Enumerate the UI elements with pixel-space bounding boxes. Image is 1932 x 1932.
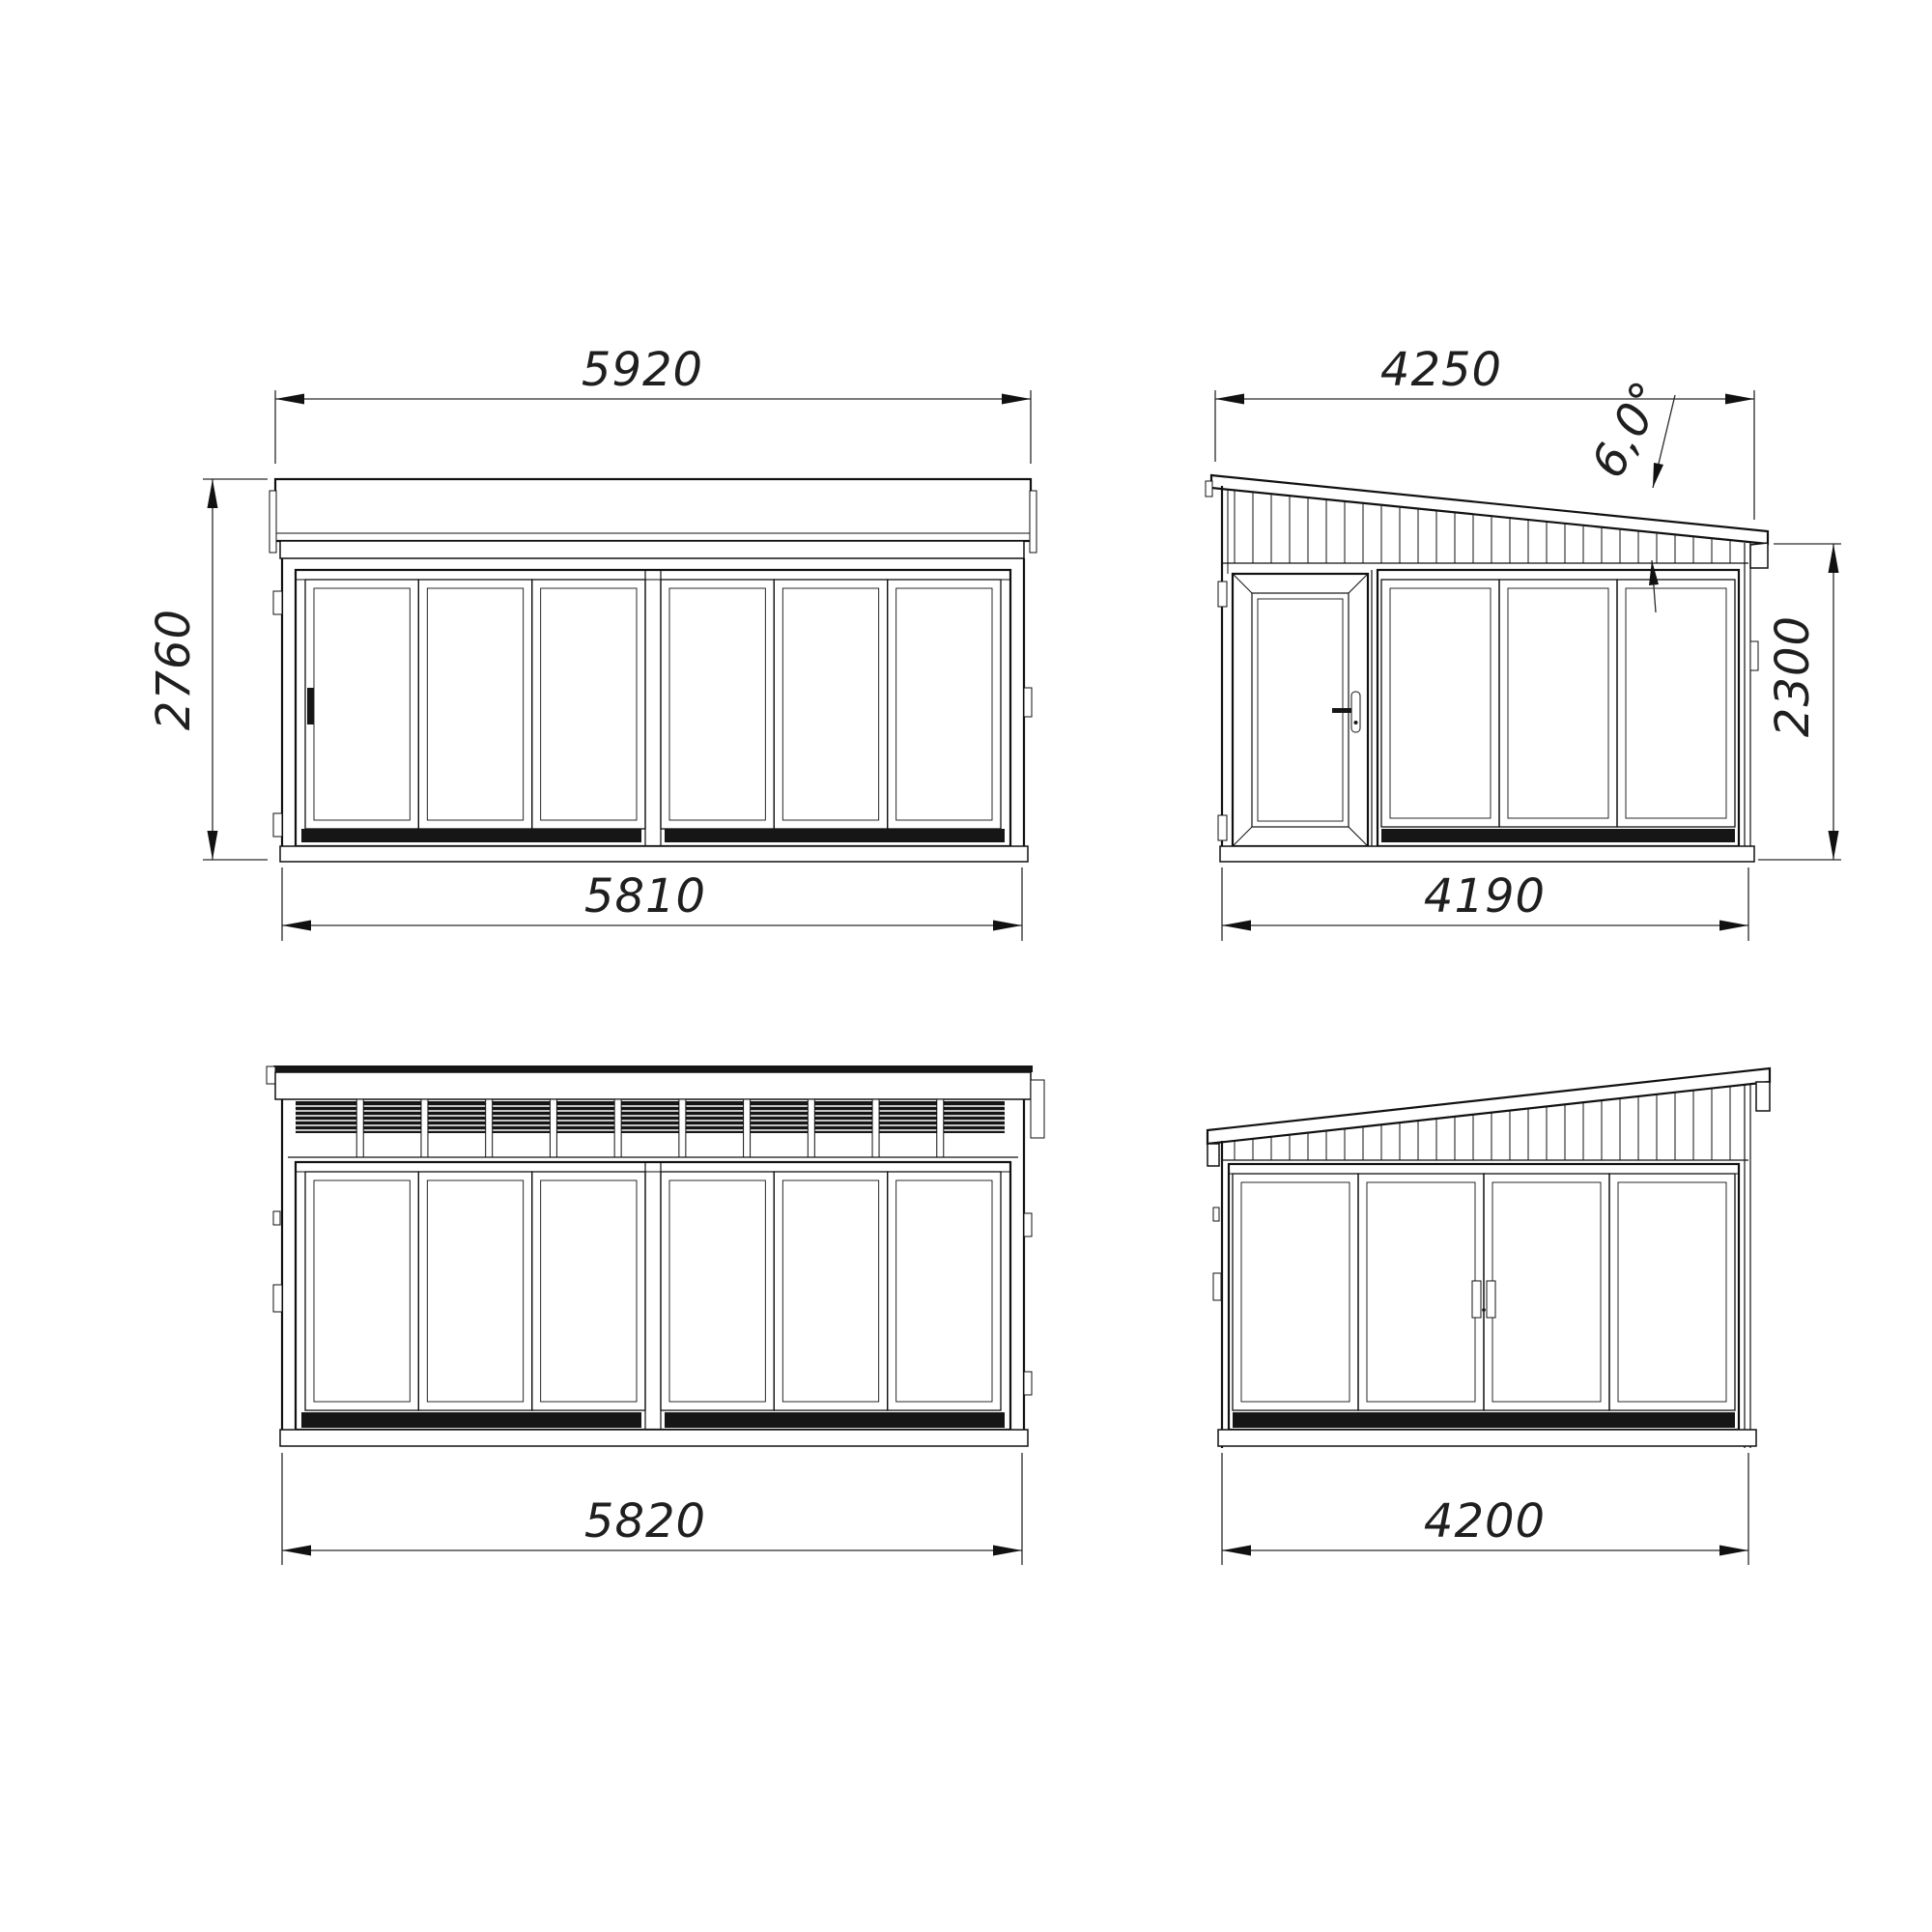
rear-sliding-glass-group-left bbox=[305, 1172, 645, 1410]
dim-side-door-bottom-width: 4190 bbox=[1222, 867, 1748, 941]
glass-panel bbox=[1617, 580, 1735, 827]
front-right-end-cap bbox=[1030, 491, 1037, 553]
side-door-base-plate bbox=[1220, 846, 1754, 862]
rear-louver-band bbox=[296, 1099, 1005, 1157]
arrow-down bbox=[1829, 831, 1839, 860]
glass-pane bbox=[314, 1180, 410, 1402]
glass-pane bbox=[1508, 588, 1608, 818]
entrance-door bbox=[1218, 574, 1368, 846]
glass-pane bbox=[669, 1180, 765, 1402]
side-door-sill-track bbox=[1381, 829, 1735, 842]
rear-base-plate bbox=[280, 1430, 1028, 1446]
door-miter-line bbox=[1233, 827, 1252, 846]
arrow-right bbox=[1002, 394, 1031, 405]
side-elevation-sliding-view: 4200 bbox=[1207, 1068, 1770, 1565]
dim-value-side-door-bottom-width: 4190 bbox=[1424, 869, 1546, 923]
glass-pane bbox=[1241, 1182, 1350, 1402]
technical-drawing-page: 5920 2760 5810 bbox=[0, 0, 1932, 1932]
glass-pane bbox=[1626, 588, 1726, 818]
glass-pane bbox=[1492, 1182, 1601, 1402]
dim-front-top-width: 5920 bbox=[275, 343, 1031, 464]
arrow-right bbox=[1719, 1546, 1748, 1556]
rear-sill-track-right bbox=[665, 1412, 1005, 1428]
front-hinge-upper bbox=[273, 591, 282, 614]
louver-post bbox=[808, 1099, 814, 1157]
door-miter-line bbox=[1349, 574, 1368, 593]
front-left-end-cap bbox=[270, 491, 276, 553]
front-eave-strip bbox=[280, 541, 1024, 558]
side-sliding-roof-slab bbox=[1207, 1068, 1770, 1144]
glass-panel bbox=[774, 580, 887, 829]
glass-panel bbox=[1484, 1174, 1609, 1410]
dim-front-left-height: 2760 bbox=[147, 479, 268, 860]
front-fascia bbox=[275, 479, 1031, 541]
glass-pane bbox=[669, 588, 765, 820]
arrow-right bbox=[993, 921, 1022, 931]
louver-post bbox=[614, 1099, 621, 1157]
louver-post bbox=[550, 1099, 556, 1157]
louver-post bbox=[486, 1099, 493, 1157]
front-door-handle bbox=[307, 688, 314, 724]
glass-panel bbox=[1233, 1174, 1358, 1410]
dim-value-side-door-top-width: 4250 bbox=[1380, 343, 1502, 397]
glass-panel bbox=[1381, 580, 1499, 827]
dim-front-bottom-width: 5810 bbox=[282, 867, 1022, 941]
front-glazing-unit bbox=[296, 570, 1010, 846]
front-sill-track-left bbox=[301, 829, 641, 842]
side-door-glass-group bbox=[1381, 580, 1735, 827]
rear-glazing-unit bbox=[296, 1162, 1010, 1430]
side-sliding-sill-track bbox=[1233, 1412, 1735, 1428]
dim-value-rear-bottom-width: 5820 bbox=[584, 1494, 706, 1548]
side-door-roof-left-notch bbox=[1206, 481, 1212, 497]
door-hinge-lower bbox=[1218, 815, 1227, 840]
glass-pane bbox=[541, 1180, 637, 1402]
side-sliding-hinge-small bbox=[1213, 1207, 1219, 1221]
door-lever-handle bbox=[1332, 708, 1353, 713]
rear-sliding-glass-group-right bbox=[661, 1172, 1001, 1410]
side-sliding-handle-left bbox=[1472, 1281, 1481, 1318]
side-sliding-lock-dot bbox=[1482, 1308, 1486, 1312]
side-sliding-glass-group bbox=[1233, 1174, 1735, 1410]
glass-panel bbox=[532, 1172, 645, 1410]
door-miter-line bbox=[1233, 574, 1252, 593]
dim-roof-angle: 6,0° bbox=[1581, 372, 1676, 612]
side-sliding-roof-left-fascia bbox=[1207, 1144, 1219, 1166]
side-door-latch-keep bbox=[1750, 641, 1758, 670]
arrow-right bbox=[993, 1546, 1022, 1556]
dim-rear-bottom-width: 5820 bbox=[282, 1453, 1022, 1565]
front-hinge-lower bbox=[273, 813, 282, 837]
rear-fascia bbox=[275, 1072, 1031, 1099]
glass-panel bbox=[418, 580, 531, 829]
glass-pane bbox=[1618, 1182, 1726, 1402]
rear-sill-track-left bbox=[301, 1412, 641, 1428]
glass-pane bbox=[896, 1180, 992, 1402]
glass-panel bbox=[888, 1172, 1001, 1410]
dim-side-door-right-height: 2300 bbox=[1758, 544, 1841, 860]
louver-post bbox=[937, 1099, 944, 1157]
arrow-down bbox=[208, 831, 218, 860]
glass-pane bbox=[1367, 1182, 1475, 1402]
dim-side-sliding-bottom-width: 4200 bbox=[1222, 1453, 1748, 1565]
dim-value-side-door-right-height: 2300 bbox=[1766, 615, 1820, 737]
front-elevation-view: 5920 2760 5810 bbox=[147, 343, 1037, 941]
louver-post bbox=[872, 1099, 879, 1157]
glass-panel bbox=[418, 1172, 531, 1410]
front-base-plate bbox=[280, 846, 1028, 862]
front-latch-keep bbox=[1024, 688, 1032, 717]
rear-right-keep-upper bbox=[1024, 1213, 1032, 1236]
door-miter-line bbox=[1349, 827, 1368, 846]
dim-value-front-left-height: 2760 bbox=[147, 609, 201, 730]
glass-pane bbox=[782, 1180, 878, 1402]
arrow-up bbox=[1829, 544, 1839, 573]
rear-roof-edge bbox=[273, 1065, 1033, 1072]
louver-post bbox=[421, 1099, 428, 1157]
front-sliding-glass-group-left bbox=[305, 580, 645, 829]
glass-pane bbox=[314, 588, 410, 820]
louver-post bbox=[356, 1099, 363, 1157]
arrow-up bbox=[208, 479, 218, 508]
door-escutcheon bbox=[1351, 692, 1360, 732]
side-sliding-left-latch bbox=[1213, 1273, 1221, 1300]
glass-panel bbox=[1358, 1174, 1484, 1410]
glass-pane bbox=[427, 588, 523, 820]
glass-panel bbox=[661, 1172, 774, 1410]
side-door-roof-slab bbox=[1211, 475, 1768, 544]
glass-pane bbox=[782, 588, 878, 820]
dim-value-front-top-width: 5920 bbox=[582, 343, 703, 397]
rear-right-keep-lower bbox=[1024, 1372, 1032, 1395]
glass-panel bbox=[1499, 580, 1617, 827]
elevation-drawing-canvas: 5920 2760 5810 bbox=[0, 0, 1932, 1932]
louver-post bbox=[679, 1099, 686, 1157]
arrow-right bbox=[1725, 394, 1754, 405]
arrow-left bbox=[282, 1546, 311, 1556]
side-sliding-handle-right bbox=[1487, 1281, 1495, 1318]
side-door-roof-right-fascia bbox=[1750, 543, 1768, 568]
door-hinge-upper bbox=[1218, 582, 1227, 607]
louver-post bbox=[744, 1099, 751, 1157]
side-sliding-base-plate bbox=[1218, 1430, 1756, 1446]
glass-panel bbox=[1609, 1174, 1735, 1410]
arrow-to-roof bbox=[1653, 463, 1663, 488]
front-sliding-glass-group-right bbox=[661, 580, 1001, 829]
arrow-right bbox=[1719, 921, 1748, 931]
door-keyhole bbox=[1354, 721, 1358, 724]
rear-left-latch bbox=[273, 1285, 282, 1312]
glass-panel bbox=[888, 580, 1001, 829]
glass-pane bbox=[427, 1180, 523, 1402]
glass-panel bbox=[774, 1172, 887, 1410]
glass-panel bbox=[532, 580, 645, 829]
glass-pane bbox=[896, 588, 992, 820]
arrow-left bbox=[282, 921, 311, 931]
dim-value-side-sliding-bottom-width: 4200 bbox=[1424, 1494, 1546, 1548]
glass-panel bbox=[305, 1172, 418, 1410]
arrow-to-head bbox=[1649, 560, 1659, 585]
arrow-left bbox=[1222, 1546, 1251, 1556]
door-glass-pane bbox=[1258, 599, 1343, 821]
arrow-left bbox=[1222, 921, 1251, 931]
glass-pane bbox=[541, 588, 637, 820]
glass-panel bbox=[661, 580, 774, 829]
rear-hinge-small bbox=[273, 1211, 280, 1225]
dim-value-front-bottom-width: 5810 bbox=[584, 869, 706, 923]
side-door-glazing-unit bbox=[1378, 570, 1739, 846]
arrow-left bbox=[275, 394, 304, 405]
side-sliding-roof-right-cap bbox=[1756, 1082, 1770, 1111]
rear-left-roof-step bbox=[267, 1066, 275, 1084]
side-elevation-door-view: 4250 6,0° 2300 4190 bbox=[1206, 343, 1841, 941]
rear-right-end-cap bbox=[1031, 1080, 1044, 1138]
arrow-left bbox=[1215, 394, 1244, 405]
rear-elevation-view: 5820 bbox=[267, 1065, 1044, 1565]
front-sill-track-right bbox=[665, 829, 1005, 842]
dim-value-roof-angle: 6,0° bbox=[1581, 372, 1676, 486]
glass-panel bbox=[305, 580, 418, 829]
glass-pane bbox=[1390, 588, 1491, 818]
